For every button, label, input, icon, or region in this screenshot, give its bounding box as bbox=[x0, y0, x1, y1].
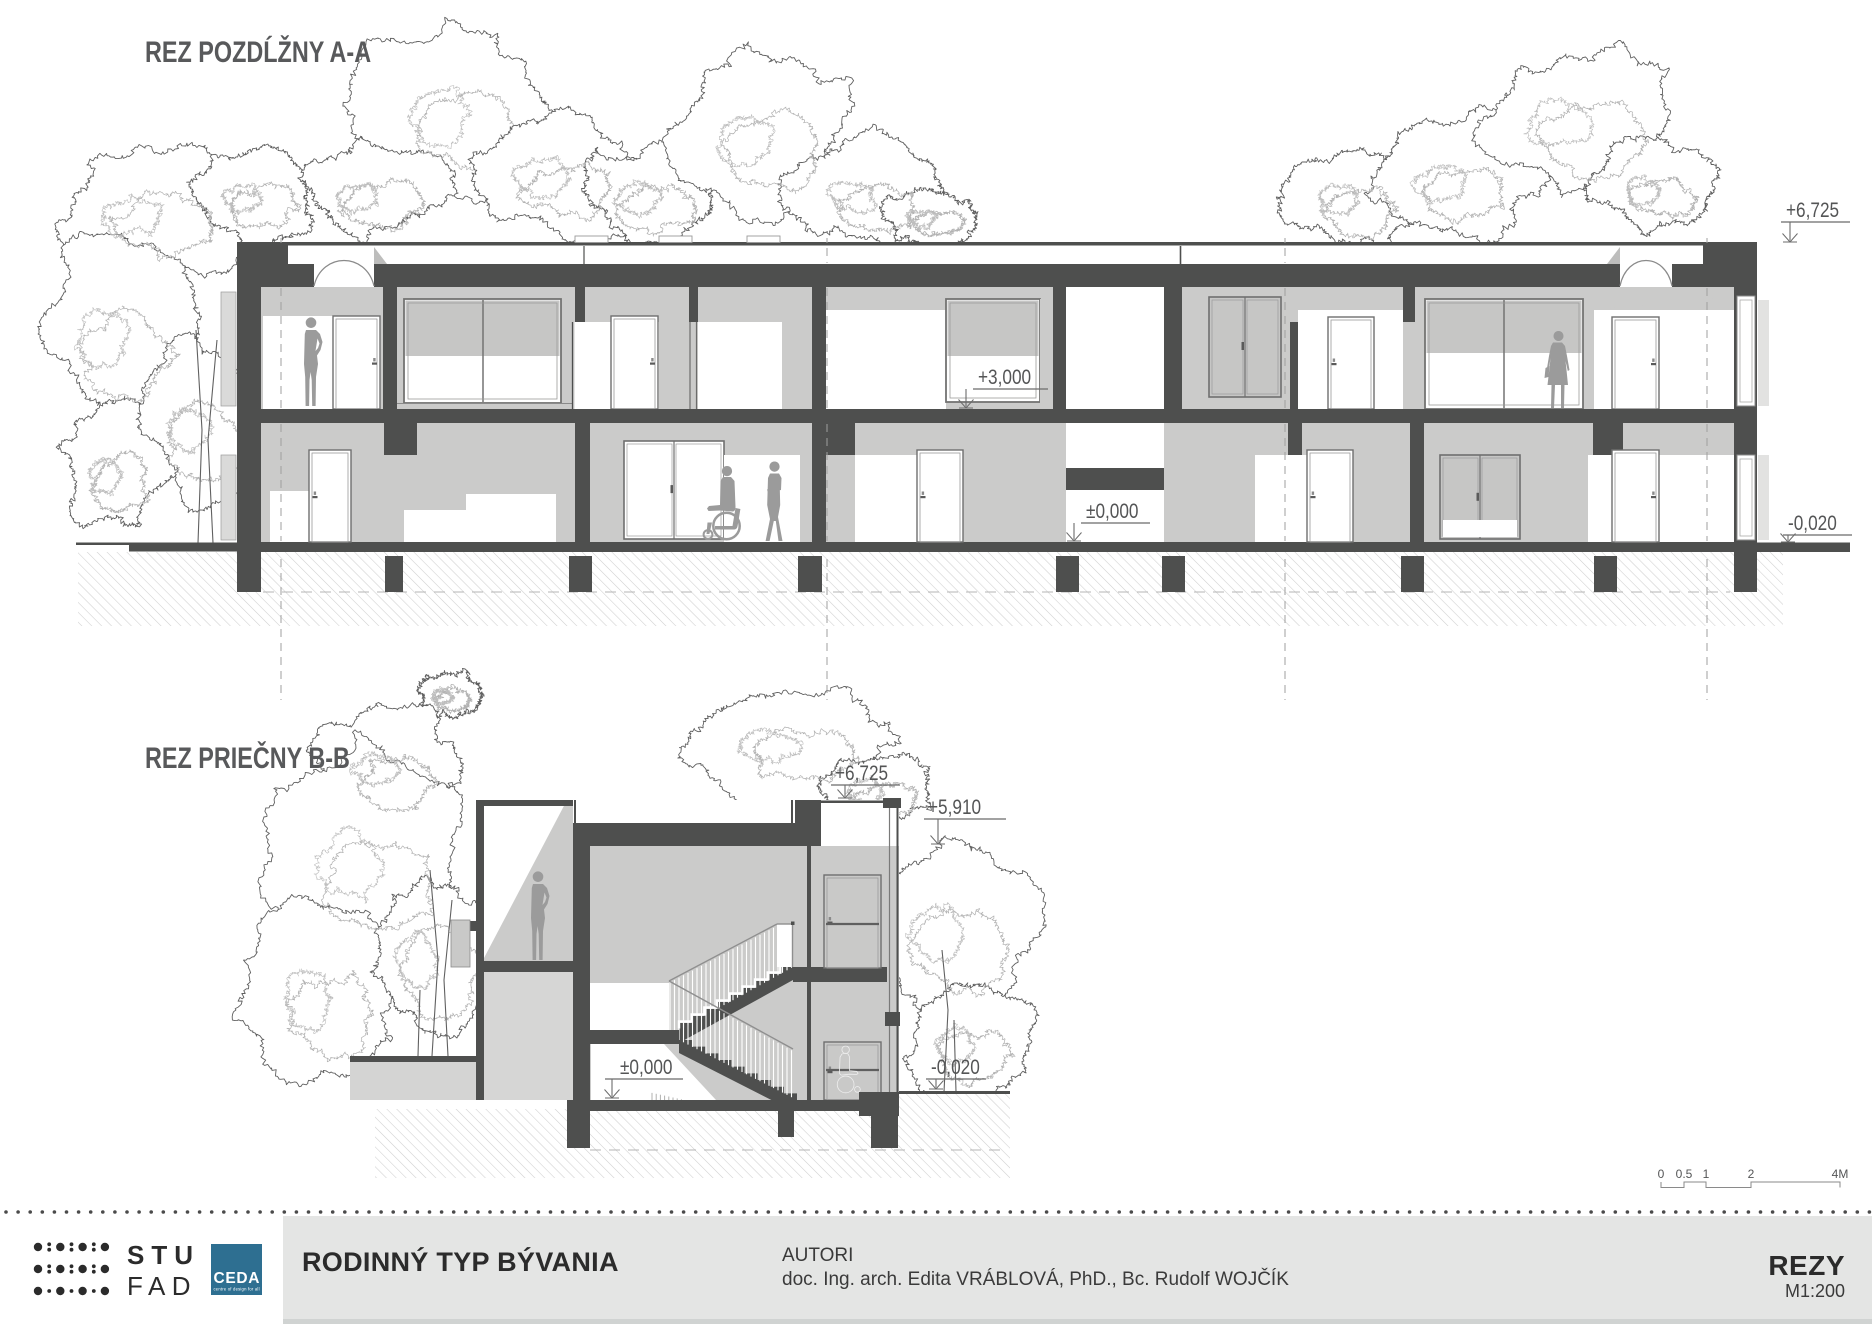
svg-text:+5,910: +5,910 bbox=[928, 797, 981, 820]
svg-text:FAD: FAD bbox=[127, 1271, 197, 1301]
svg-text:REZ PRIEČNY B-B: REZ PRIEČNY B-B bbox=[145, 739, 350, 775]
svg-text:-0,020: -0,020 bbox=[1788, 513, 1837, 536]
svg-text:2: 2 bbox=[1748, 1167, 1755, 1181]
svg-text:0.5: 0.5 bbox=[1676, 1167, 1693, 1181]
svg-text:AUTORI: AUTORI bbox=[782, 1245, 853, 1266]
svg-text:CEDA: CEDA bbox=[214, 1270, 260, 1287]
svg-text:M1:200: M1:200 bbox=[1785, 1281, 1845, 1301]
svg-text:REZ POZDĹŽNY A-A: REZ POZDĹŽNY A-A bbox=[145, 34, 371, 69]
svg-text:doc. Ing. arch. Edita VRÁBLOV: doc. Ing. arch. Edita VRÁBLOVÁ, PhD., Bc… bbox=[782, 1268, 1289, 1290]
svg-text:-0,020: -0,020 bbox=[931, 1057, 980, 1080]
svg-text:REZY: REZY bbox=[1768, 1250, 1845, 1281]
svg-text:+6,725: +6,725 bbox=[835, 763, 888, 786]
svg-text:1: 1 bbox=[1703, 1167, 1710, 1181]
svg-text:STU: STU bbox=[127, 1240, 200, 1270]
svg-text:+3,000: +3,000 bbox=[978, 367, 1031, 390]
svg-text:0: 0 bbox=[1658, 1167, 1665, 1181]
svg-text:±0,000: ±0,000 bbox=[620, 1057, 673, 1080]
svg-text:RODINNÝ TYP BÝVANIA: RODINNÝ TYP BÝVANIA bbox=[302, 1246, 619, 1277]
svg-text:4M: 4M bbox=[1832, 1167, 1849, 1181]
svg-text:centre of design for all: centre of design for all bbox=[214, 1287, 260, 1292]
svg-text:+6,725: +6,725 bbox=[1786, 200, 1839, 223]
svg-text:±0,000: ±0,000 bbox=[1086, 501, 1139, 524]
